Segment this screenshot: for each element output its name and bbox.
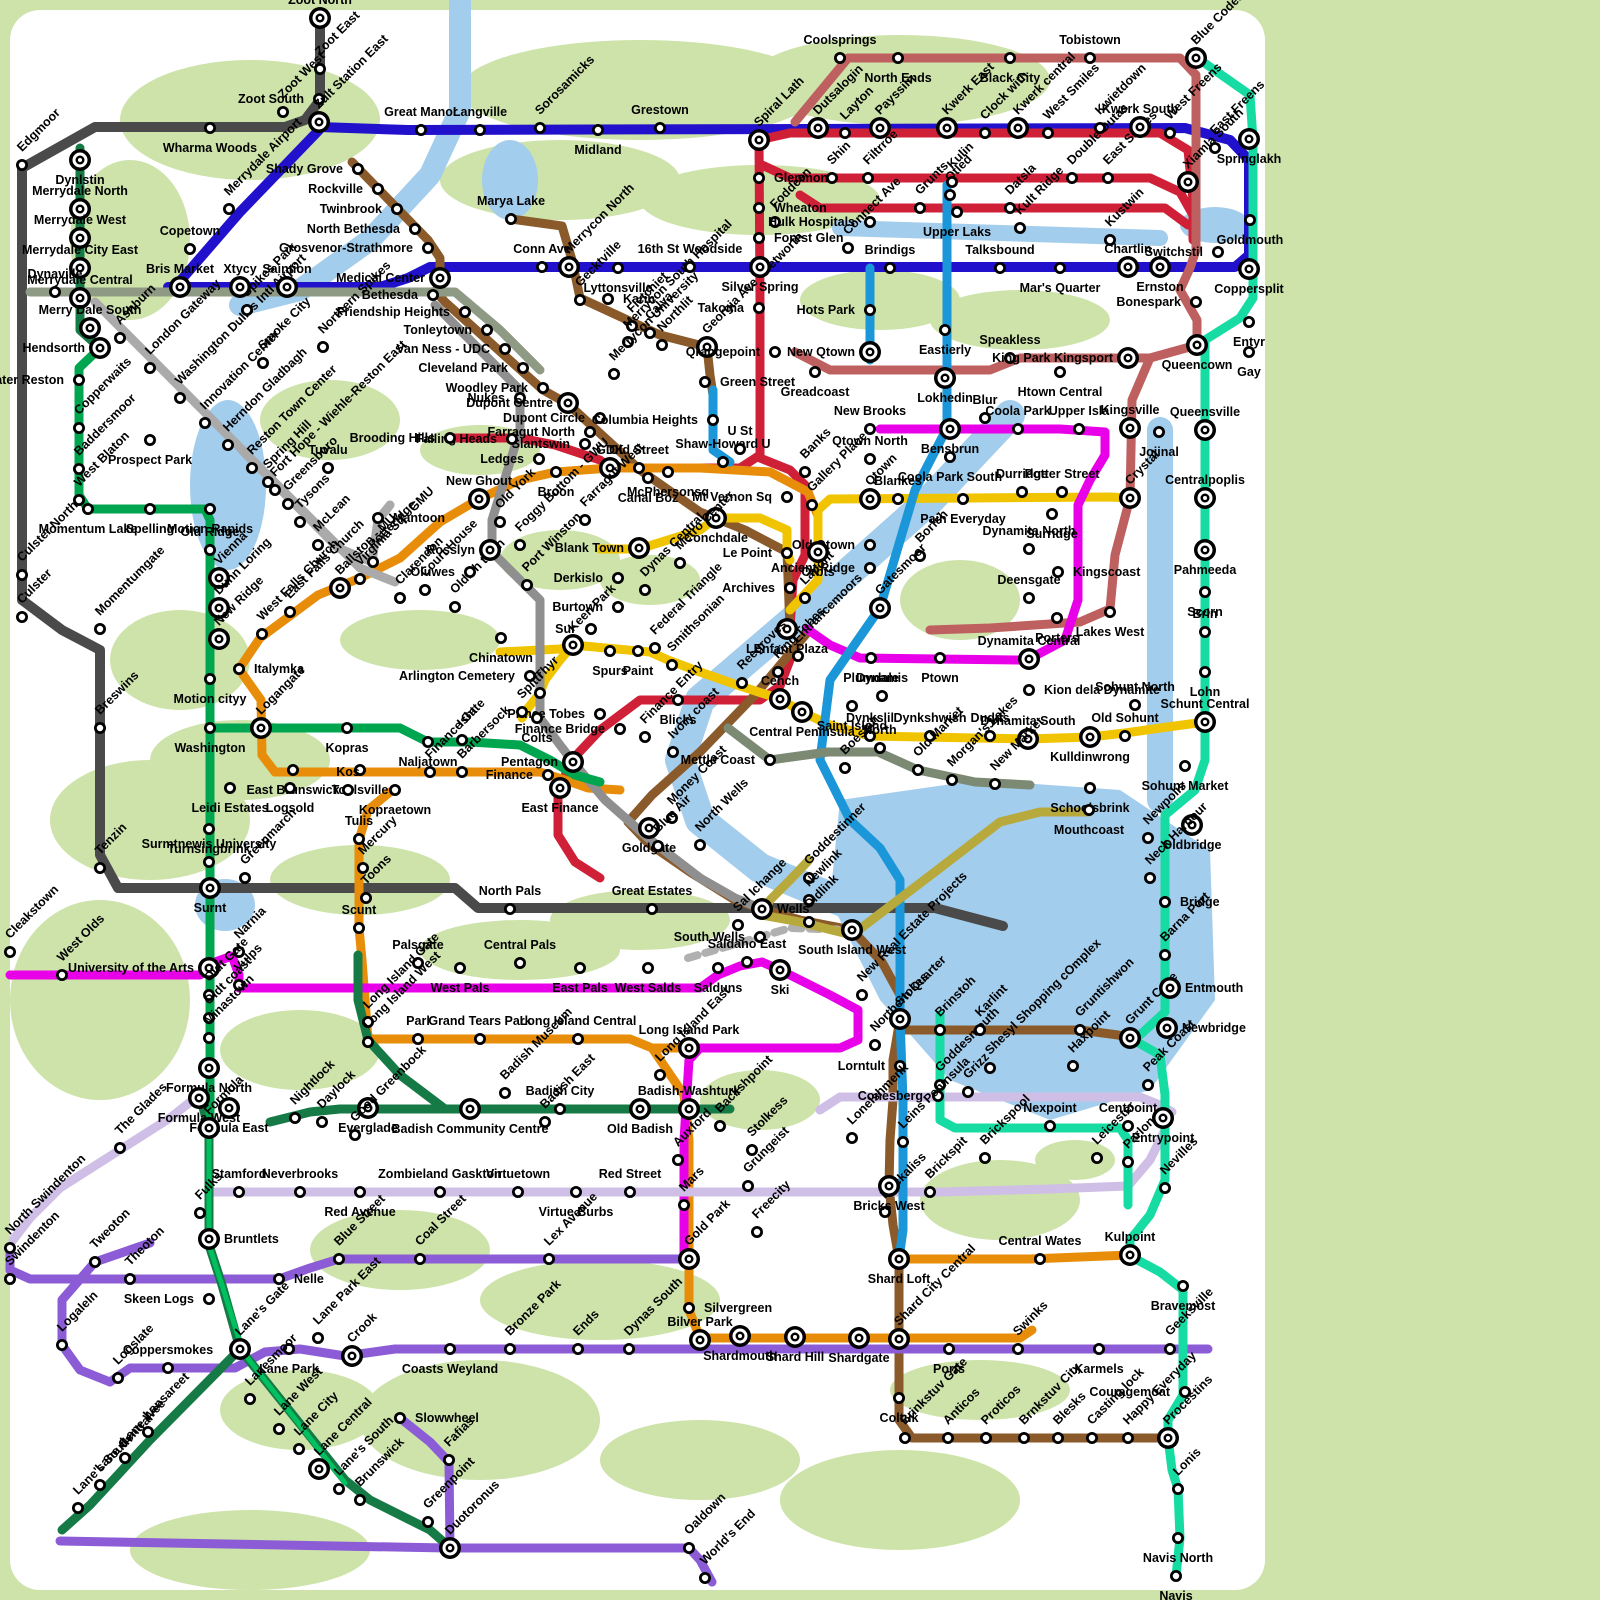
interchange-dot bbox=[1186, 180, 1190, 184]
line-orange-wates[interactable] bbox=[899, 1255, 1130, 1259]
station-label: New Qtown bbox=[787, 345, 855, 359]
station-dot bbox=[457, 965, 463, 971]
interchange-dot bbox=[78, 207, 82, 211]
station-dot bbox=[1045, 130, 1051, 136]
station-dot bbox=[1094, 1155, 1100, 1161]
station-label: Lorntult bbox=[838, 1059, 886, 1073]
interchange-dot bbox=[1128, 1253, 1132, 1257]
station-dot bbox=[1162, 1185, 1168, 1191]
station-label: Couragemoat bbox=[1089, 1385, 1170, 1399]
interchange-dot bbox=[800, 710, 804, 714]
station-dot bbox=[117, 1145, 123, 1151]
interchange-dot bbox=[1126, 265, 1130, 269]
interchange-dot bbox=[1194, 56, 1198, 60]
station-dot bbox=[97, 626, 103, 632]
station-dot bbox=[702, 379, 708, 385]
station-dot bbox=[147, 506, 153, 512]
interchange-dot bbox=[1203, 496, 1207, 500]
station-label: Merrydale City East bbox=[22, 243, 139, 257]
station-dot bbox=[965, 1089, 971, 1095]
station-dot bbox=[1247, 217, 1253, 223]
station-dot bbox=[177, 395, 183, 401]
interchange-dot bbox=[1027, 657, 1031, 661]
station-label: Zombieland Gaskton bbox=[378, 1167, 502, 1181]
station-dot bbox=[655, 843, 661, 849]
station-dot bbox=[447, 435, 453, 441]
station-dot bbox=[867, 219, 873, 225]
station-dot bbox=[1125, 1123, 1131, 1129]
station-dot bbox=[336, 1256, 342, 1262]
station-label: Tulis bbox=[345, 814, 373, 828]
station-dot bbox=[7, 1276, 13, 1282]
station-label: Zoot South bbox=[238, 92, 304, 106]
interchange-dot bbox=[468, 1107, 472, 1111]
interchange-dot bbox=[816, 126, 820, 130]
station-label: Ledges bbox=[480, 452, 524, 466]
station-dot bbox=[477, 127, 483, 133]
station-label: Centralpoplis bbox=[1165, 473, 1245, 487]
station-dot bbox=[737, 446, 743, 452]
station-label: Tobistown bbox=[1059, 33, 1121, 47]
station-dot bbox=[992, 781, 998, 787]
station-dot bbox=[812, 369, 818, 375]
interchange-dot bbox=[638, 1107, 642, 1111]
station-dot bbox=[867, 456, 873, 462]
station-label: Navis North bbox=[1143, 1551, 1213, 1565]
station-dot bbox=[756, 175, 762, 181]
station-dot bbox=[686, 1305, 692, 1311]
station-dot bbox=[665, 469, 671, 475]
interchange-dot bbox=[567, 265, 571, 269]
station-dot bbox=[1202, 629, 1208, 635]
station-dot bbox=[397, 595, 403, 601]
station-dot bbox=[459, 769, 465, 775]
station-label: Brin bbox=[1193, 607, 1218, 621]
interchange-dot bbox=[945, 126, 949, 130]
interchange-dot bbox=[207, 1066, 211, 1070]
station-label: Badish Community Centre bbox=[392, 1122, 549, 1136]
station-dot bbox=[484, 327, 490, 333]
station-dot bbox=[652, 645, 658, 651]
interchange-dot bbox=[778, 697, 782, 701]
station-label: Coasts Weyland bbox=[402, 1362, 498, 1376]
station-dot bbox=[645, 475, 651, 481]
station-dot bbox=[895, 496, 901, 502]
station-dot bbox=[507, 1346, 513, 1352]
station-dot bbox=[1037, 1256, 1043, 1262]
interchange-dot bbox=[1128, 496, 1132, 500]
station-label: Great Estates bbox=[612, 884, 693, 898]
station-dot bbox=[635, 648, 641, 654]
interchange-dot bbox=[898, 1017, 902, 1021]
station-dot bbox=[717, 1123, 723, 1129]
interchange-dot bbox=[317, 120, 321, 124]
station-dot bbox=[365, 1039, 371, 1045]
interchange-dot bbox=[878, 126, 882, 130]
station-dot bbox=[1007, 55, 1013, 61]
station-dot bbox=[397, 1415, 403, 1421]
station-label: West Salds bbox=[615, 981, 682, 995]
station-dot bbox=[75, 1505, 81, 1511]
station-label: Greadcoast bbox=[781, 385, 851, 399]
station-dot bbox=[1246, 349, 1252, 355]
station-dot bbox=[546, 1256, 552, 1262]
station-dot bbox=[670, 749, 676, 755]
station-label: Entmouth bbox=[1185, 981, 1243, 995]
station-dot bbox=[735, 922, 741, 928]
station-label: New Ghout bbox=[446, 474, 513, 488]
station-label: Grand Tears Park bbox=[428, 1014, 531, 1028]
station-dot bbox=[615, 604, 621, 610]
station-dot bbox=[1167, 130, 1173, 136]
interchange-dot bbox=[738, 1334, 742, 1338]
station-dot bbox=[1015, 1346, 1021, 1352]
station-dot bbox=[249, 465, 255, 471]
station-dot bbox=[498, 635, 504, 641]
station-dot bbox=[1167, 1346, 1173, 1352]
station-label: Conn Ave bbox=[513, 242, 570, 256]
station-label: Red Street bbox=[599, 1167, 662, 1181]
station-label: West Pals bbox=[431, 981, 490, 995]
station-label: Leidi Estates bbox=[191, 801, 268, 815]
station-label: Pentagon bbox=[501, 755, 558, 769]
station-dot bbox=[1069, 175, 1075, 181]
station-label: Kulpoint bbox=[1105, 1230, 1157, 1244]
station-dot bbox=[59, 972, 65, 978]
station-label: Central Pals bbox=[484, 938, 556, 952]
station-label: Archives bbox=[722, 581, 775, 595]
station-dot bbox=[534, 715, 540, 721]
park-area bbox=[50, 760, 250, 880]
station-label: Central Peninsula bbox=[749, 725, 856, 739]
station-dot bbox=[508, 216, 514, 222]
interchange-dot bbox=[757, 138, 761, 142]
station-dot bbox=[1097, 125, 1103, 131]
station-dot bbox=[206, 859, 212, 865]
station-dot bbox=[927, 1189, 933, 1195]
station-dot bbox=[1059, 489, 1065, 495]
station-dot bbox=[675, 697, 681, 703]
station-dot bbox=[784, 494, 790, 500]
station-dot bbox=[187, 246, 193, 252]
station-dot bbox=[587, 429, 593, 435]
station-dot bbox=[127, 1276, 133, 1282]
station-dot bbox=[7, 949, 13, 955]
station-dot bbox=[357, 1497, 363, 1503]
station-label: Silver Spring bbox=[721, 280, 798, 294]
interchange-dot bbox=[816, 550, 820, 554]
station-label: Zoot North bbox=[288, 0, 352, 7]
station-dot bbox=[895, 55, 901, 61]
station-label: Navis bbox=[1159, 1589, 1192, 1600]
station-dot bbox=[287, 785, 293, 791]
station-dot bbox=[837, 55, 843, 61]
station-dot bbox=[588, 626, 594, 632]
station-dot bbox=[115, 1375, 121, 1381]
station-dot bbox=[982, 1155, 988, 1161]
station-dot bbox=[536, 456, 542, 462]
station-label: Parl bbox=[406, 1014, 430, 1028]
interchange-dot bbox=[1168, 986, 1172, 990]
station-label: Wharma Woods bbox=[163, 141, 257, 155]
station-dot bbox=[1087, 55, 1093, 61]
station-dot bbox=[427, 769, 433, 775]
station-dot bbox=[745, 1183, 751, 1189]
station-dot bbox=[977, 1027, 983, 1033]
station-label: Coppersplit bbox=[1214, 282, 1284, 296]
station-label: Old Badish bbox=[607, 1122, 673, 1136]
station-dot bbox=[422, 587, 428, 593]
interchange-dot bbox=[897, 1257, 901, 1261]
interchange-dot bbox=[571, 643, 575, 647]
station-dot bbox=[1162, 899, 1168, 905]
station-label: Shard Loft bbox=[868, 1272, 931, 1286]
station-dot bbox=[1057, 369, 1063, 375]
station-label: Bilver Park bbox=[667, 1315, 732, 1329]
station-dot bbox=[542, 1119, 548, 1125]
station-label: Ptown bbox=[921, 671, 959, 685]
station-dot bbox=[97, 1482, 103, 1488]
station-dot bbox=[509, 436, 515, 442]
station-label: East Pals bbox=[552, 981, 608, 995]
station-label: Pahmeeda bbox=[1174, 563, 1238, 577]
station-label: North Bethesda bbox=[307, 222, 401, 236]
station-dot bbox=[849, 703, 855, 709]
station-label: Le Point bbox=[723, 546, 773, 560]
station-label: Kingscoast bbox=[1073, 565, 1141, 579]
station-dot bbox=[477, 1036, 483, 1042]
station-dot bbox=[452, 604, 458, 610]
station-label: Ernston bbox=[1136, 280, 1183, 294]
station-dot bbox=[76, 497, 82, 503]
station-dot bbox=[276, 1426, 282, 1432]
station-label: Qrangepoint bbox=[686, 345, 761, 359]
station-dot bbox=[575, 1036, 581, 1042]
station-label: Kingsville bbox=[1100, 403, 1159, 417]
station-dot bbox=[1182, 763, 1188, 769]
station-label: Derkislo bbox=[554, 571, 604, 585]
station-label: Dynamita North bbox=[982, 524, 1075, 538]
station-dot bbox=[207, 125, 213, 131]
station-dot bbox=[207, 547, 213, 553]
station-dot bbox=[502, 346, 508, 352]
station-dot bbox=[392, 787, 398, 793]
interchange-dot bbox=[778, 968, 782, 972]
station-dot bbox=[902, 1435, 908, 1441]
station-dot bbox=[1087, 785, 1093, 791]
station-dot bbox=[319, 1119, 325, 1125]
station-dot bbox=[236, 1189, 242, 1195]
station-dot bbox=[845, 245, 851, 251]
station-dot bbox=[467, 569, 473, 575]
station-dot bbox=[357, 1189, 363, 1195]
station-dot bbox=[1017, 225, 1023, 231]
station-label: Karmels bbox=[1074, 1362, 1123, 1376]
station-dot bbox=[336, 1486, 342, 1492]
station-dot bbox=[545, 772, 551, 778]
station-dot bbox=[557, 1106, 563, 1112]
station-label: Bris Market bbox=[146, 262, 215, 276]
station-label: Lokhedin bbox=[917, 391, 973, 405]
station-label: Cench bbox=[761, 674, 799, 688]
station-dot bbox=[1076, 426, 1082, 432]
station-dot bbox=[1125, 1435, 1131, 1441]
station-dot bbox=[515, 1189, 521, 1195]
station-dot bbox=[446, 1457, 452, 1463]
station-dot bbox=[917, 205, 923, 211]
interchange-dot bbox=[1128, 426, 1132, 430]
station-dot bbox=[325, 465, 331, 471]
station-dot bbox=[702, 1575, 708, 1581]
interchange-dot bbox=[897, 1337, 901, 1341]
station-dot bbox=[787, 585, 793, 591]
interchange-dot bbox=[477, 497, 481, 501]
station-dot bbox=[207, 676, 213, 682]
station-dot bbox=[1026, 546, 1032, 552]
station-dot bbox=[945, 1435, 951, 1441]
station-dot bbox=[615, 575, 621, 581]
station-dot bbox=[809, 502, 815, 508]
interchange-dot bbox=[1247, 137, 1251, 141]
station-grosvenor-strathmore[interactable]: Grosvenor-Strathmore bbox=[279, 241, 434, 255]
station-dot bbox=[287, 609, 293, 615]
station-dot bbox=[669, 662, 675, 668]
station-dot bbox=[867, 307, 873, 313]
station-dot bbox=[1107, 237, 1113, 243]
park-area bbox=[10, 900, 190, 1100]
station-dot bbox=[1246, 319, 1252, 325]
station-dot bbox=[247, 1396, 253, 1402]
station-dot bbox=[868, 655, 874, 661]
station-dot bbox=[937, 655, 943, 661]
station-dot bbox=[636, 465, 642, 471]
station-dot bbox=[165, 1365, 171, 1371]
station-dot bbox=[659, 342, 665, 348]
station-label: Mouthcoast bbox=[1054, 823, 1125, 837]
station-label: Potter Street bbox=[1024, 467, 1100, 481]
station-label: Chinatown bbox=[469, 651, 533, 665]
station-dot bbox=[772, 349, 778, 355]
station-dot bbox=[744, 959, 750, 965]
station-dot bbox=[1202, 669, 1208, 675]
station-dot bbox=[947, 192, 953, 198]
station-label: Slantswin bbox=[512, 437, 570, 451]
interchange-dot bbox=[98, 346, 102, 350]
station-dot bbox=[597, 711, 603, 717]
station-label: Bruntlets bbox=[224, 1232, 279, 1246]
station-dot bbox=[997, 265, 1003, 271]
station-label: Kos bbox=[336, 765, 360, 779]
station-dot bbox=[915, 767, 921, 773]
station-dot bbox=[1202, 589, 1208, 595]
station-label: Bonespark bbox=[1116, 295, 1181, 309]
interchange-dot bbox=[338, 586, 342, 590]
station-label: Colts bbox=[521, 731, 552, 745]
station-label: Mar's Quarter bbox=[1020, 281, 1101, 295]
station-label: Virtuetown bbox=[486, 1167, 550, 1181]
interchange-dot bbox=[1158, 265, 1162, 269]
station-dot bbox=[206, 1035, 212, 1041]
station-dot bbox=[447, 1346, 453, 1352]
station-dot bbox=[720, 459, 726, 465]
station-dot bbox=[879, 693, 885, 699]
station-label: Prospect Park bbox=[108, 453, 192, 467]
station-dot bbox=[642, 587, 648, 593]
station-dot bbox=[537, 125, 543, 131]
interchange-dot bbox=[1016, 126, 1020, 130]
interchange-dot bbox=[1203, 548, 1207, 552]
station-dot bbox=[657, 1072, 663, 1078]
station-dot bbox=[497, 519, 503, 525]
station-dot bbox=[582, 441, 588, 447]
station-label: North Pals bbox=[479, 884, 542, 898]
station-label: East Finance bbox=[521, 801, 598, 815]
station-label: Lakes West bbox=[1076, 625, 1145, 639]
interchange-dot bbox=[207, 1126, 211, 1130]
station-label: Motion cityy bbox=[174, 692, 247, 706]
station-dot bbox=[627, 1189, 633, 1195]
station-dot bbox=[675, 1157, 681, 1163]
station-dot bbox=[739, 680, 745, 686]
interchange-dot bbox=[448, 1546, 452, 1550]
station-label: Momentum Lake bbox=[39, 522, 138, 536]
station-dot bbox=[577, 297, 583, 303]
station-label: Merrydale North bbox=[32, 184, 128, 198]
station-dot bbox=[577, 965, 583, 971]
interchange-dot bbox=[857, 1336, 861, 1340]
station-label: Long Island Central bbox=[520, 1014, 637, 1028]
station-dot bbox=[657, 125, 663, 131]
station-dot bbox=[987, 1065, 993, 1071]
station-dot bbox=[462, 309, 468, 315]
station-dot bbox=[767, 757, 773, 763]
station-label: Columbia Heights bbox=[592, 413, 698, 427]
station-dot bbox=[52, 289, 58, 295]
station-kion-dela-dynamite[interactable]: Kion dela Dynamite bbox=[1023, 683, 1160, 697]
park-area bbox=[310, 1210, 490, 1290]
station-label: Great Manor bbox=[384, 105, 458, 119]
station-label: Cleveland Park bbox=[418, 361, 508, 375]
station-dot bbox=[259, 631, 265, 637]
station-dot bbox=[1055, 1435, 1061, 1441]
station-dot bbox=[605, 296, 611, 302]
station-dot bbox=[859, 992, 865, 998]
station-dot bbox=[202, 420, 208, 426]
station-dot bbox=[375, 186, 381, 192]
station-label: Xtycy bbox=[223, 262, 256, 276]
station-dot bbox=[842, 765, 848, 771]
interchange-dot bbox=[1088, 735, 1092, 739]
station-label: Langville bbox=[453, 105, 507, 119]
interchange-dot bbox=[488, 548, 492, 552]
station-dot bbox=[575, 1346, 581, 1352]
station-dot bbox=[756, 205, 762, 211]
station-dot bbox=[540, 385, 546, 391]
park-area bbox=[600, 1420, 800, 1500]
station-dot bbox=[582, 517, 588, 523]
station-dot bbox=[517, 542, 523, 548]
station-label: Grestown bbox=[631, 103, 689, 117]
station-label: Hots Park bbox=[797, 303, 855, 317]
station-label: Gay bbox=[1237, 365, 1261, 379]
interchange-dot bbox=[238, 285, 242, 289]
station-dot bbox=[626, 1346, 632, 1352]
station-label: Old Sohunt bbox=[1091, 711, 1159, 725]
station-dot bbox=[617, 726, 623, 732]
station-dot bbox=[1175, 1535, 1181, 1541]
interchange-dot bbox=[227, 1106, 231, 1110]
station-dot bbox=[92, 1259, 98, 1265]
